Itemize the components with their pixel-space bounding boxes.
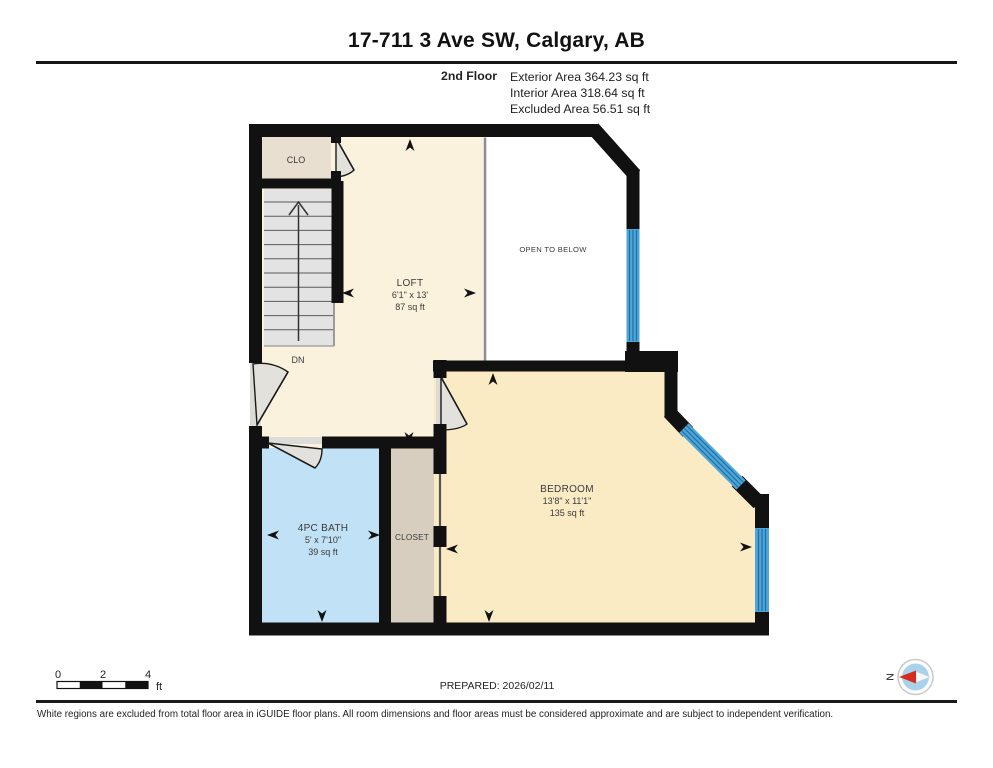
floor-plan-canvas: CLO DN LOFT 6'1" x 13' 87 sq ft OPEN TO …: [0, 0, 993, 768]
staircase: [264, 189, 334, 346]
disclaimer-text: White regions are excluded from total fl…: [37, 709, 967, 720]
bedroom-label: BEDROOM: [540, 484, 594, 495]
scale-tick-2: 2: [100, 669, 106, 681]
loft-label: LOFT: [397, 278, 424, 289]
bedroom-floor: [434, 366, 755, 624]
window: [755, 528, 769, 612]
scale-bar-segment: [125, 682, 148, 689]
north-label: N: [885, 673, 897, 681]
loft-dimensions: 6'1" x 13': [392, 290, 428, 300]
scale-tick-4: 4: [145, 669, 151, 681]
scale-unit: ft: [156, 681, 162, 693]
bedroom-area: 135 sq ft: [550, 508, 585, 518]
scale-bar: 0 2 4 ft: [55, 669, 162, 693]
loft-area: 87 sq ft: [395, 302, 425, 312]
prepared-date: PREPARED: 2026/02/11: [440, 680, 555, 692]
scale-bar-segment: [80, 682, 103, 689]
bath-area: 39 sq ft: [308, 547, 338, 557]
dn-label: DN: [292, 355, 305, 365]
north-compass: N: [885, 660, 934, 695]
window: [627, 229, 640, 342]
door-opening-bath: [268, 437, 322, 444]
bedroom-dimensions: 13'8" x 11'1": [543, 496, 592, 506]
scale-tick-0: 0: [55, 669, 61, 681]
open-to-below-label: OPEN TO BELOW: [519, 245, 587, 254]
bath-dimensions: 5' x 7'10": [305, 535, 341, 545]
bath-label: 4PC BATH: [298, 523, 349, 534]
floor-plan-page: 17-711 3 Ave SW, Calgary, AB 2nd Floor E…: [0, 0, 993, 768]
clo-label: CLO: [287, 155, 306, 165]
closet-label: CLOSET: [395, 533, 429, 542]
footer-divider: [36, 700, 957, 703]
